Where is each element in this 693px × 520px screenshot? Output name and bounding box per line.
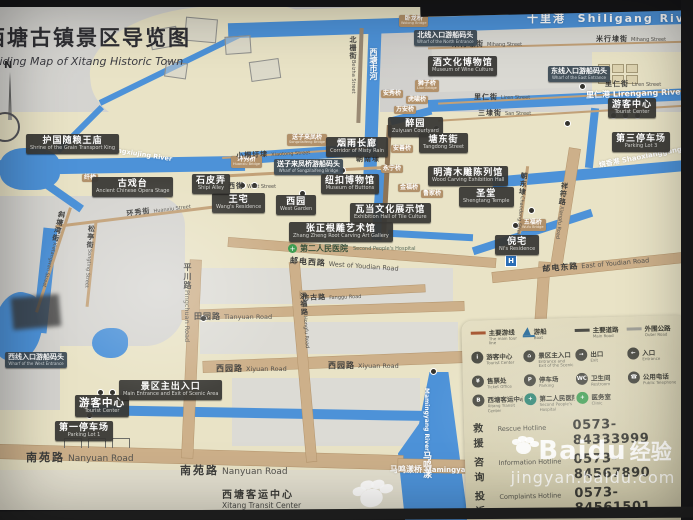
- clinic-cross-icon: +: [576, 392, 588, 404]
- place-label-west-garden: 西园West Garden: [276, 195, 316, 215]
- bridge-label: 万安桥: [394, 106, 416, 114]
- hotline-information: 咨询Information Hotline0573-84567890: [474, 448, 681, 484]
- legend-item-entrance: ←入口Entrance: [627, 346, 677, 366]
- place-label-button-museum: 纽扣博物馆Museum of Buttons: [321, 174, 379, 194]
- place-label-shengtang: 圣堂Shengtang Temple: [459, 187, 514, 207]
- hotline-rescue: 救援Rescue Hotline0573-84333999: [473, 414, 680, 450]
- place-label-parking-lot-3: 第三停车场Parking Lot 3: [612, 132, 670, 152]
- place-label-wood-carving-hall: 明清木雕陈列馆Wood Carving Exhibition Hall: [428, 166, 508, 186]
- legend-item-main-entrance: ⌂景区主入口Entrance and Exit of the Scenic Ar…: [523, 349, 573, 369]
- street-label: 南苑路Nanyuan Road: [26, 446, 134, 465]
- bridge-label: 狮子桥Lion Bridge: [415, 80, 439, 92]
- street-label: 平川路Pingchuan Road: [178, 263, 197, 342]
- bus-icon: B: [472, 395, 484, 407]
- place-label-main-entrance: 景区主出入口Main Entrance and Exit of Scenic A…: [119, 380, 222, 400]
- place-label-tile-culture-hall: 瓦当文化展示馆Exhibition Hall of Tile Culture: [350, 203, 431, 223]
- bridge-label: 永宁桥: [381, 165, 403, 173]
- entrance-icon: ←: [627, 347, 639, 359]
- legend-item-tourist-center: i游客中心Tourist Center: [471, 350, 521, 370]
- outer-road-swatch-icon: [627, 327, 642, 330]
- hospital-icon: H: [505, 255, 517, 267]
- wharf-label: 西线入口游船码头Wharf of the West Entrance: [5, 352, 67, 368]
- wharf-label: 送子来凤桥游船码头Wharf of Songzilaifeng Bridge: [274, 159, 343, 175]
- street-label: 田园路Tianyuan Road: [194, 304, 272, 323]
- place-label-wine-museum: 酒文化博物馆Museum of Wine Culture: [428, 56, 497, 76]
- street-label: 米行埭街Mihang Street: [596, 26, 666, 45]
- street-label: 北栅街Beizha Street: [344, 36, 363, 94]
- photo-edge-right: [681, 0, 693, 520]
- legend-item-parking: P停车场Parking: [524, 373, 574, 389]
- street-label: 西街West Street: [228, 173, 276, 192]
- legend-item-outer-road: 外围公路Outer Road: [626, 322, 676, 342]
- street-label: 西园路Xiyuan Road: [216, 356, 287, 375]
- legend-item-restroom: WC卫生间Restroom: [576, 371, 626, 387]
- legend-item-clinic: +医务室Clinic: [576, 391, 626, 411]
- legend-item-phone: ☎公用电话Public Telephone: [628, 370, 678, 386]
- city-block-2: [200, 322, 458, 354]
- wharf-label: 北线入口游船码头Wharf of the North Entrance: [414, 30, 477, 46]
- legend-item-boat: 游船Boat: [523, 325, 573, 345]
- bridge-label: 虎啸桥: [406, 96, 428, 104]
- info-icon: i: [471, 351, 483, 363]
- ticket-icon: ¥: [472, 375, 484, 387]
- pond-scenic: [92, 328, 128, 358]
- tour-line-swatch-icon: [471, 331, 486, 334]
- wharf-label: 东线入口游船码头Wharf of the East Entrance: [548, 66, 610, 82]
- place-label-tangdong-street: 塘东街Tangdong Street: [419, 133, 468, 153]
- bridge-label: 安善桥: [391, 145, 413, 153]
- river-label: Mamingyang River马鸣漾: [420, 388, 433, 478]
- restroom-icon: WC: [576, 372, 588, 384]
- boat-icon: [523, 327, 531, 335]
- street-label: 西园路Xiyuan Road: [328, 353, 399, 372]
- building: [249, 58, 281, 82]
- place-label-wang-residence: 王宅Wang's Residence: [212, 193, 265, 213]
- bridge-label: 金福桥: [398, 184, 420, 192]
- building: [224, 35, 251, 55]
- parking-icon: P: [524, 374, 536, 386]
- smudge-artifact: [11, 294, 62, 330]
- legend-item-tour-line: 主要游线The main tour line: [471, 326, 521, 346]
- compass-north-label: N: [4, 60, 12, 71]
- bridge-label: 安秀桥: [381, 90, 403, 98]
- bridge-label: 卧龙桥Wolong Bridge: [399, 15, 428, 27]
- place-label-shipi-alley: 石皮弄Shipi Alley: [192, 174, 230, 194]
- phone-icon: ☎: [628, 371, 640, 383]
- place-label-transit-center: 西塘客运中心Xitang Transit Center: [222, 486, 301, 510]
- bridge-label: 鲁家桥: [421, 190, 443, 198]
- place-label-opera-stage: 古戏台Ancient Chinese Opera Stage: [92, 177, 173, 197]
- place-label-tourist-center-ne: 游客中心Tourist Center: [608, 98, 656, 118]
- map-photo: H 卧龙桥Wolong Bridge 狮子桥Lion Bridge 安秀桥 虎啸…: [0, 0, 693, 520]
- legend-item-exit: →出口Exit: [575, 347, 625, 367]
- exit-icon: →: [575, 348, 587, 360]
- poi-icon: [430, 368, 437, 375]
- legend-panel: 主要游线The main tour line 游船Boat 主要道路Main R…: [461, 315, 690, 520]
- legend-item-ticket-office: ¥售票处Ticket Office: [472, 374, 522, 390]
- legend-item-hospital: +第二人民医院Second People's Hospital: [524, 392, 574, 412]
- legend-grid: 主要游线The main tour line 游船Boat 主要道路Main R…: [471, 322, 679, 413]
- place-label-ni-residence: 倪宅Ni's Residence: [495, 235, 539, 255]
- street-label: 三埭街San Street: [478, 100, 531, 119]
- hospital-cross-icon: +: [524, 393, 536, 405]
- paw-icon: [362, 492, 383, 510]
- place-label-hospital: +第二人民医院Second People's Hospital: [288, 243, 416, 254]
- legend-item-transit-center: B西塘客运中心Xitang Transit Center: [472, 394, 522, 414]
- hotline-list: 救援Rescue Hotline0573-84333999 咨询Informat…: [473, 414, 682, 518]
- place-label-misty-rain-corridor: 烟雨长廊Corridor of Misty Rain: [326, 137, 388, 157]
- place-label-huguo-temple: 护国随粮王庙Shrine of the Grain Transport King: [26, 134, 119, 154]
- street-label: 洪福路Hongfu Road: [294, 291, 317, 348]
- page-title: 西塘古镇景区导览图Guiding Map of Xitang Historic …: [0, 22, 191, 68]
- place-label-root-carving-gallery: 张正根雕艺术馆Zhang Zheng Root Carving Art Gall…: [289, 222, 393, 242]
- river-label: 西塘市河: [368, 48, 379, 80]
- cross-icon: +: [288, 244, 297, 253]
- place-label-parking-lot-1: 第一停车场Parking Lot 1: [55, 421, 113, 441]
- gate-icon: ⌂: [523, 350, 535, 362]
- poi-icon: [564, 120, 571, 127]
- legend-item-main-road: 主要道路Main Road: [574, 324, 624, 344]
- main-road-swatch-icon: [575, 329, 590, 332]
- street-label: 南苑路Nanyuan Road: [180, 459, 288, 478]
